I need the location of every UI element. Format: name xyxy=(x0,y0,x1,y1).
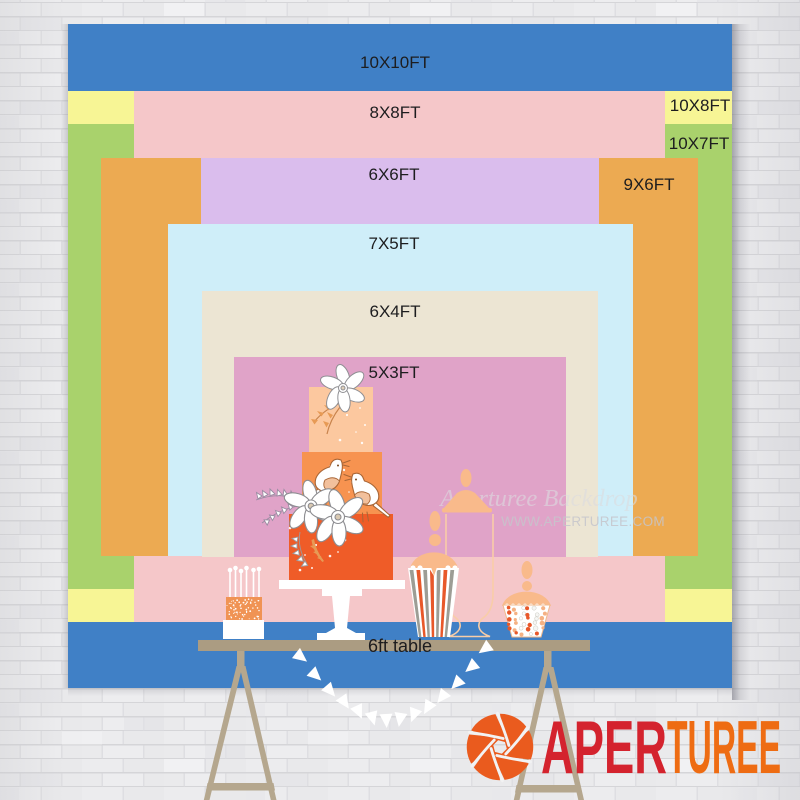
svg-text:9X6FT: 9X6FT xyxy=(623,175,674,194)
svg-text:5X3FT: 5X3FT xyxy=(368,363,419,382)
svg-text:APER: APER xyxy=(541,705,667,789)
svg-text:7X5FT: 7X5FT xyxy=(368,234,419,253)
svg-text:10X8FT: 10X8FT xyxy=(670,96,730,115)
svg-text:8X8FT: 8X8FT xyxy=(369,103,420,122)
svg-text:10X7FT: 10X7FT xyxy=(669,134,729,153)
svg-text:6ft table: 6ft table xyxy=(368,636,432,656)
svg-text:6X6FT: 6X6FT xyxy=(368,165,419,184)
svg-text:WWW.APERTUREE.COM: WWW.APERTUREE.COM xyxy=(501,514,665,529)
svg-text:TUREE: TUREE xyxy=(667,705,781,789)
svg-text:10X10FT: 10X10FT xyxy=(360,53,430,72)
svg-text:6X4FT: 6X4FT xyxy=(369,302,420,321)
